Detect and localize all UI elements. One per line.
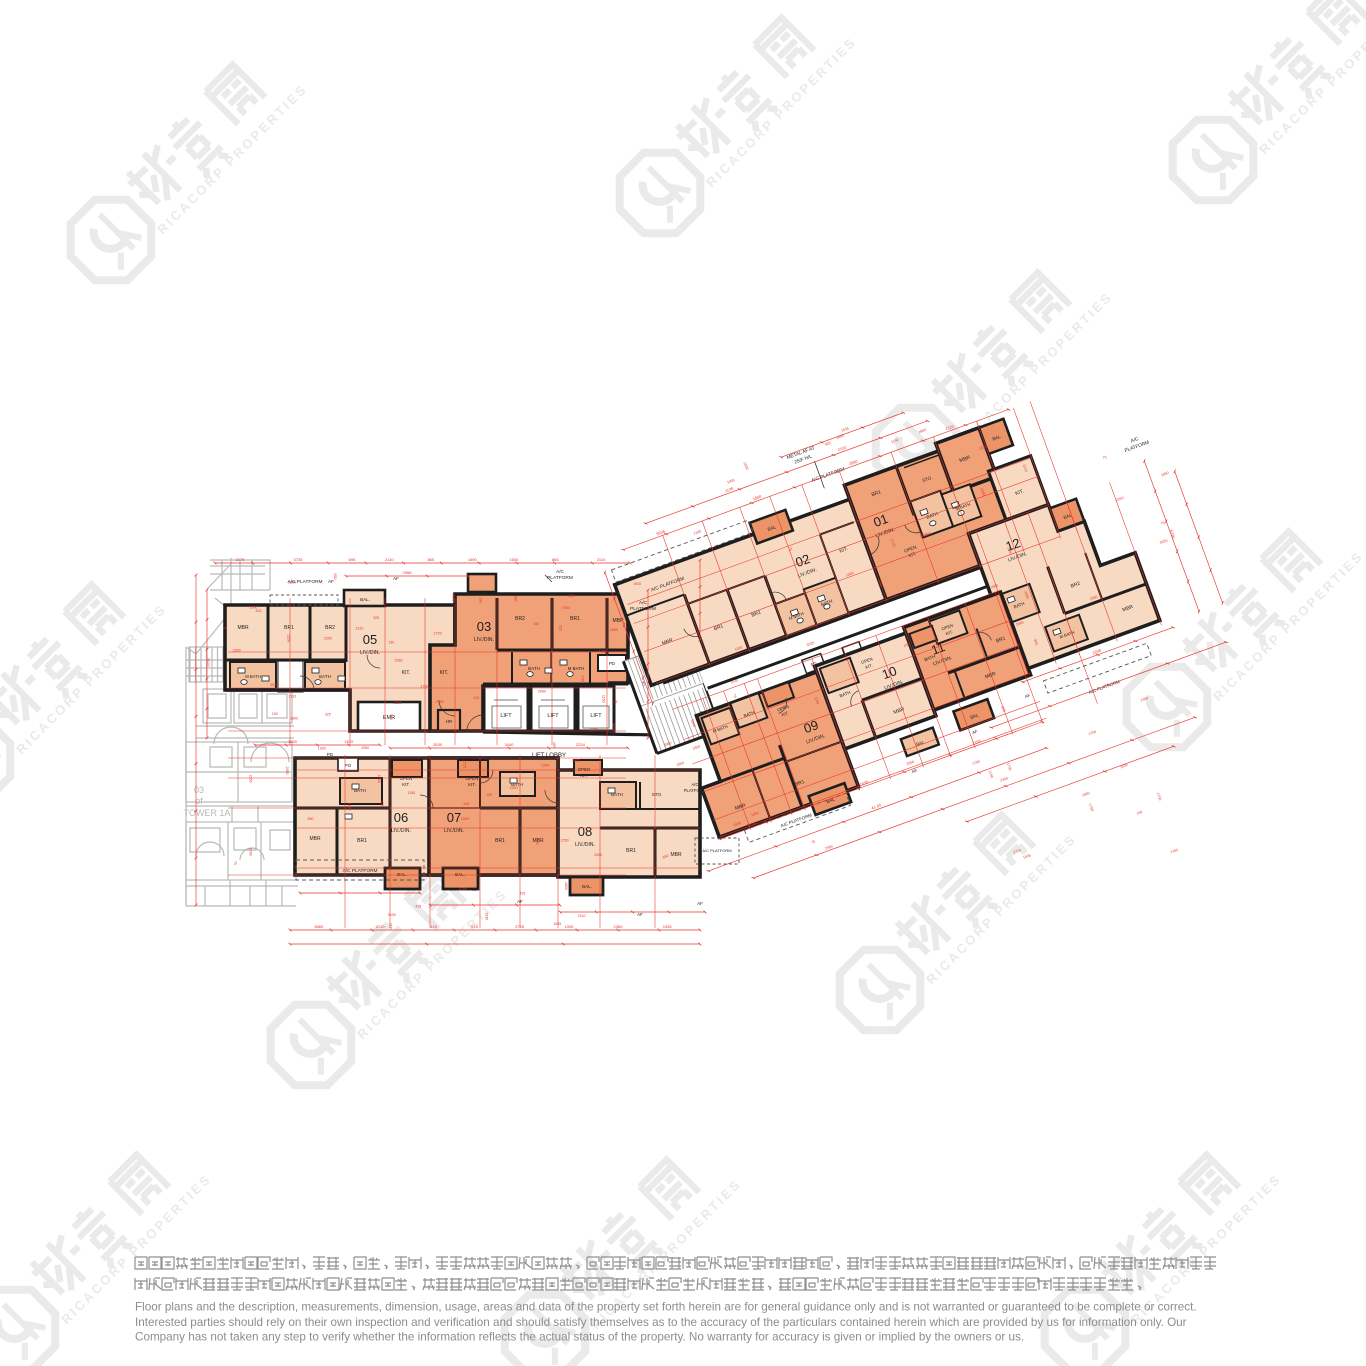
svg-text:2060: 2060 <box>594 853 602 857</box>
svg-text:325: 325 <box>325 713 331 717</box>
svg-text:03: 03 <box>477 619 491 634</box>
svg-text:150: 150 <box>388 641 394 645</box>
svg-text:3025: 3025 <box>206 658 211 668</box>
svg-text:MBR: MBR <box>612 618 624 624</box>
svg-text:1535: 1535 <box>553 922 561 926</box>
svg-text:2110: 2110 <box>451 594 455 602</box>
svg-text:AF: AF <box>517 899 523 904</box>
svg-text:1600: 1600 <box>509 557 519 562</box>
svg-text:415: 415 <box>473 696 479 700</box>
svg-text:AF: AF <box>697 901 703 906</box>
svg-text:1700: 1700 <box>580 675 584 683</box>
svg-text:3530: 3530 <box>433 742 443 747</box>
svg-text:1005: 1005 <box>564 924 574 929</box>
svg-text:2725: 2725 <box>462 760 466 768</box>
svg-text:3025: 3025 <box>270 683 278 687</box>
svg-text:05: 05 <box>363 632 377 647</box>
svg-text:AF: AF <box>472 887 478 892</box>
svg-text:A/C: A/C <box>556 569 565 575</box>
svg-text:2250: 2250 <box>287 634 291 642</box>
svg-text:1930: 1930 <box>633 582 641 586</box>
svg-text:2110: 2110 <box>578 914 586 918</box>
svg-text:1870: 1870 <box>344 739 354 744</box>
svg-text:2725: 2725 <box>590 728 598 732</box>
svg-text:BATH: BATH <box>319 674 331 679</box>
svg-text:08: 08 <box>578 824 592 839</box>
svg-text:75: 75 <box>223 627 227 631</box>
svg-text:KIT.: KIT. <box>580 773 588 778</box>
svg-text:1930: 1930 <box>318 747 326 751</box>
svg-text:Floor plans and the descriptio: Floor plans and the description, measure… <box>135 1301 1197 1314</box>
svg-text:PD: PD <box>327 752 334 757</box>
svg-text:HR: HR <box>446 719 453 724</box>
svg-text:2110: 2110 <box>385 557 394 562</box>
svg-text:OPEN: OPEN <box>578 767 591 772</box>
svg-text:325: 325 <box>373 616 379 620</box>
svg-text:2060: 2060 <box>538 689 546 693</box>
svg-text:OPEN: OPEN <box>466 776 479 781</box>
svg-text:2210: 2210 <box>376 924 386 929</box>
svg-text:75: 75 <box>233 861 237 865</box>
svg-text:865: 865 <box>552 557 559 562</box>
svg-text:BAL.: BAL. <box>455 872 465 877</box>
svg-text:BAL.: BAL. <box>582 884 592 889</box>
svg-text:1150: 1150 <box>599 649 607 653</box>
svg-text:03: 03 <box>194 785 204 795</box>
svg-text:PO: PO <box>345 763 352 768</box>
svg-text:3865: 3865 <box>314 924 324 929</box>
svg-text:OPEN: OPEN <box>400 776 413 781</box>
svg-text:AF: AF <box>393 576 399 581</box>
svg-text:150: 150 <box>552 742 556 748</box>
svg-text:325: 325 <box>389 714 393 720</box>
svg-text:MBR: MBR <box>670 852 682 858</box>
svg-text:LIV./DIN.: LIV./DIN. <box>391 828 411 834</box>
svg-text:2110: 2110 <box>597 557 606 562</box>
svg-text:AF: AF <box>328 579 334 584</box>
svg-text:LIV./DIN.: LIV./DIN. <box>474 637 494 643</box>
svg-text:of: of <box>195 796 203 806</box>
svg-text:LIV./DIN.: LIV./DIN. <box>360 650 380 656</box>
svg-text:1535: 1535 <box>663 924 673 929</box>
svg-text:1150: 1150 <box>348 803 352 811</box>
svg-text:BR1: BR1 <box>495 838 505 844</box>
svg-text:M BATH: M BATH <box>568 666 585 671</box>
svg-text:LIFT: LIFT <box>590 713 602 719</box>
svg-text:2110: 2110 <box>289 694 297 698</box>
svg-text:3025: 3025 <box>572 759 580 763</box>
svg-text:415: 415 <box>430 924 437 929</box>
svg-text:2950: 2950 <box>436 700 444 704</box>
svg-text:415: 415 <box>463 802 469 806</box>
svg-text:150: 150 <box>533 622 539 626</box>
svg-text:MBR: MBR <box>309 836 321 842</box>
svg-text:LIV./DIN.: LIV./DIN. <box>575 842 595 848</box>
svg-text:3440: 3440 <box>505 742 515 747</box>
svg-text:1000: 1000 <box>461 817 469 821</box>
svg-text:865: 865 <box>427 557 434 562</box>
svg-text:650: 650 <box>308 817 314 821</box>
svg-text:1150: 1150 <box>611 723 615 731</box>
svg-text:2110: 2110 <box>389 923 393 931</box>
svg-text:1535: 1535 <box>393 701 401 705</box>
svg-text:LIV./DIN.: LIV./DIN. <box>444 828 464 834</box>
svg-text:1930: 1930 <box>510 786 518 790</box>
svg-text:2110: 2110 <box>356 626 364 630</box>
svg-text:KIT.: KIT. <box>468 782 476 787</box>
svg-text:06: 06 <box>394 810 408 825</box>
svg-text:Interested parties should rely: Interested parties should rely on their … <box>135 1316 1187 1329</box>
svg-text:BR1: BR1 <box>570 616 580 622</box>
svg-text:BAL.: BAL. <box>397 872 407 877</box>
svg-text:2968: 2968 <box>403 570 413 575</box>
svg-text:KIT.: KIT. <box>402 782 410 787</box>
svg-text:A/C: A/C <box>692 782 699 787</box>
svg-text:2950: 2950 <box>361 746 369 750</box>
svg-text:3025: 3025 <box>388 913 396 917</box>
svg-text:1150: 1150 <box>407 791 415 795</box>
svg-text:A/C PLATFORM: A/C PLATFORM <box>287 579 322 585</box>
svg-text:A/C PLATFORM: A/C PLATFORM <box>342 868 377 874</box>
svg-text:150: 150 <box>486 793 492 797</box>
svg-text:07: 07 <box>447 810 461 825</box>
svg-text:STO.: STO. <box>652 792 662 797</box>
svg-text:1150: 1150 <box>601 695 605 703</box>
svg-text:AF: AF <box>637 912 643 917</box>
svg-text:1930: 1930 <box>562 606 570 610</box>
svg-text:1800: 1800 <box>564 882 568 890</box>
svg-text:2300: 2300 <box>233 649 241 653</box>
svg-text:PLATFORM: PLATFORM <box>630 606 656 612</box>
svg-text:2060: 2060 <box>395 659 403 663</box>
svg-text:2250: 2250 <box>324 637 332 641</box>
svg-text:BR2: BR2 <box>515 616 525 622</box>
svg-text:2725: 2725 <box>434 631 442 635</box>
svg-text:325: 325 <box>559 625 563 631</box>
svg-text:2360: 2360 <box>614 924 624 929</box>
svg-text:2725: 2725 <box>459 887 467 891</box>
svg-text:900: 900 <box>513 595 517 601</box>
svg-text:1700: 1700 <box>249 848 253 856</box>
svg-text:KIT.: KIT. <box>402 670 411 676</box>
svg-text:Company has not taken any step: Company has not taken any step to verify… <box>135 1331 1024 1344</box>
svg-text:695: 695 <box>349 557 356 562</box>
svg-text:415: 415 <box>415 904 421 908</box>
svg-text:75: 75 <box>613 700 617 704</box>
svg-text:BATH: BATH <box>528 666 540 671</box>
svg-text:415: 415 <box>380 800 384 806</box>
svg-text:150: 150 <box>272 712 278 716</box>
svg-text:2250: 2250 <box>249 775 253 783</box>
svg-text:BR1: BR1 <box>626 848 636 854</box>
svg-text:MBR: MBR <box>237 625 249 631</box>
svg-text:1930: 1930 <box>484 912 488 920</box>
svg-text:BR1: BR1 <box>284 625 294 631</box>
svg-text:1700: 1700 <box>377 775 381 783</box>
svg-text:915: 915 <box>471 924 478 929</box>
svg-text:2060: 2060 <box>610 628 618 632</box>
svg-text:3735: 3735 <box>294 557 304 562</box>
svg-text:KIT.: KIT. <box>440 670 449 676</box>
svg-text:TOWER 1A: TOWER 1A <box>184 808 231 818</box>
svg-text:A/C PLATFORM: A/C PLATFORM <box>702 848 731 853</box>
svg-text:LIFT: LIFT <box>500 713 512 719</box>
svg-text:PD: PD <box>609 661 616 666</box>
svg-text:2300: 2300 <box>541 764 549 768</box>
svg-text:PLATFORM: PLATFORM <box>547 575 573 581</box>
svg-text:325: 325 <box>255 609 261 613</box>
svg-text:1950: 1950 <box>288 739 298 744</box>
svg-text:415: 415 <box>519 891 525 895</box>
svg-text:415: 415 <box>568 594 574 598</box>
svg-text:A/C: A/C <box>639 600 648 606</box>
svg-text:BR2: BR2 <box>325 625 335 631</box>
svg-text:1690: 1690 <box>468 557 478 562</box>
svg-text:150: 150 <box>479 597 483 603</box>
svg-text:1700: 1700 <box>420 684 428 688</box>
svg-text:LIFT: LIFT <box>547 713 559 719</box>
svg-text:BAL.: BAL. <box>360 597 370 602</box>
svg-text:BR1: BR1 <box>357 838 367 844</box>
svg-text:2950: 2950 <box>285 767 289 775</box>
svg-text:2234: 2234 <box>576 742 586 747</box>
svg-text:2275: 2275 <box>235 557 245 562</box>
svg-text:2250: 2250 <box>561 838 569 842</box>
svg-text:325: 325 <box>535 839 539 845</box>
svg-text:1800: 1800 <box>290 717 298 721</box>
svg-text:M BATH: M BATH <box>245 674 261 679</box>
